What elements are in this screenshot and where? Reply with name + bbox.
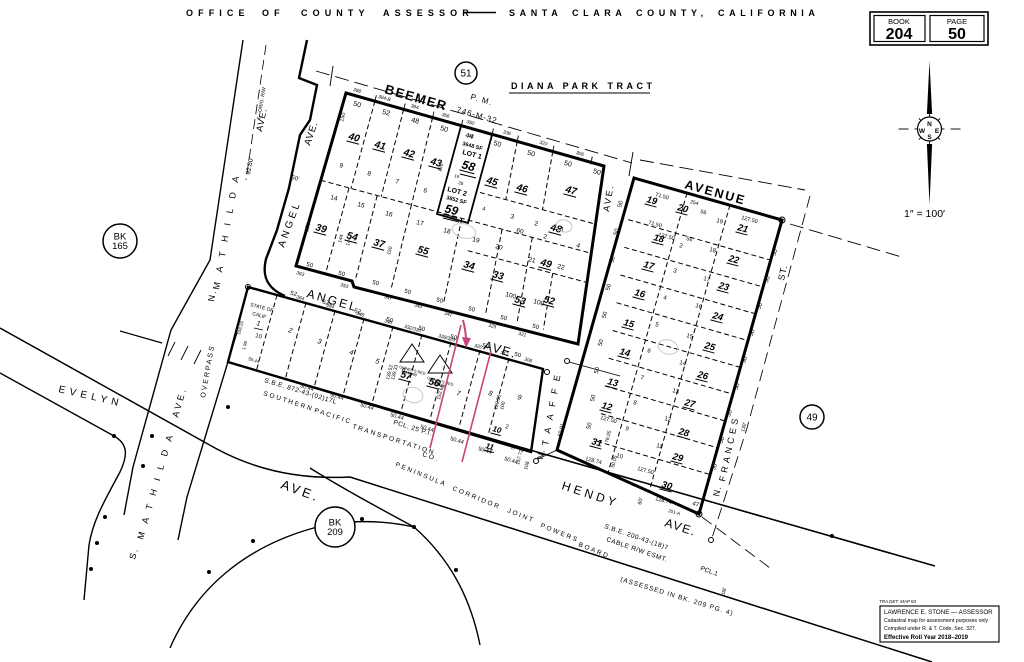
svg-text:OF: OF — [262, 8, 285, 18]
svg-text:N.: N. — [535, 448, 547, 461]
svg-text:COUNTY,: COUNTY, — [636, 8, 708, 18]
svg-text:BOOK: BOOK — [888, 17, 910, 26]
svg-text:50: 50 — [948, 26, 966, 43]
svg-text:N: N — [927, 121, 932, 128]
svg-text:OFFICE: OFFICE — [186, 8, 250, 18]
svg-text:204: 204 — [886, 26, 913, 43]
svg-text:COUNTY: COUNTY — [301, 8, 370, 18]
svg-text:E: E — [935, 128, 940, 135]
svg-text:ASSESSOR: ASSESSOR — [383, 8, 474, 18]
svg-text:CLARA: CLARA — [572, 8, 627, 18]
svg-text:TRA DET. MAP 83: TRA DET. MAP 83 — [879, 599, 917, 604]
svg-text:209: 209 — [327, 527, 343, 538]
svg-text:PAGE: PAGE — [947, 17, 967, 26]
svg-text:S: S — [927, 134, 932, 141]
svg-text:Cadastral map for assessment p: Cadastral map for assessment purposes on… — [884, 618, 988, 624]
svg-text:165: 165 — [112, 241, 128, 252]
svg-text:W: W — [919, 128, 926, 135]
svg-text:51: 51 — [460, 69, 472, 80]
svg-text:1″ = 100′: 1″ = 100′ — [904, 208, 945, 220]
svg-text:Effective Roll Year 2018–2019: Effective Roll Year 2018–2019 — [884, 635, 969, 641]
svg-text:SANTA: SANTA — [509, 8, 562, 18]
svg-text:LAWRENCE E. STONE — ASSESSOR: LAWRENCE E. STONE — ASSESSOR — [884, 609, 993, 616]
svg-text:DIANA PARK TRACT: DIANA PARK TRACT — [511, 81, 656, 91]
svg-text:CALIFORNIA: CALIFORNIA — [718, 8, 820, 18]
svg-text:Compiled under R. & T. Code, S: Compiled under R. & T. Code, Sec. 327. — [884, 626, 976, 632]
svg-text:49: 49 — [806, 413, 818, 424]
